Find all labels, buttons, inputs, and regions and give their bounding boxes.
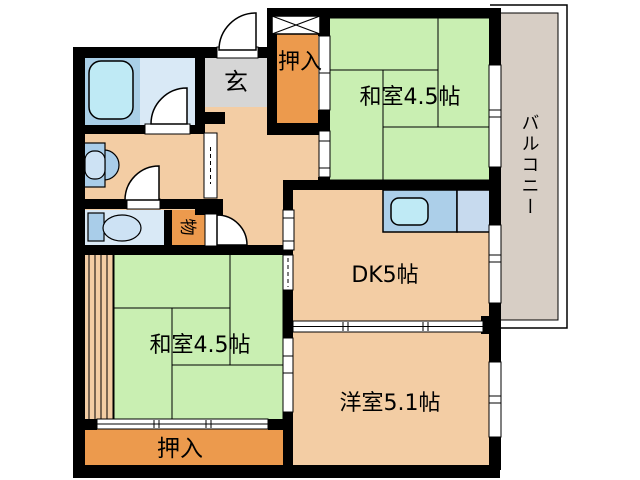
window-frame xyxy=(489,225,501,303)
window-frame xyxy=(489,65,501,167)
entrance-label: 玄 xyxy=(224,68,248,96)
bathroom-threshold xyxy=(145,124,190,134)
sliding-door-frame xyxy=(283,338,293,412)
wall xyxy=(164,210,172,245)
closet-top-box xyxy=(277,34,318,125)
dk-western-partition xyxy=(293,321,483,332)
washitsu-dk-sliding-door xyxy=(283,255,293,290)
wall xyxy=(283,250,293,255)
washroom-sliding-door xyxy=(204,133,217,198)
wall xyxy=(283,412,293,465)
window-frame xyxy=(489,362,501,437)
opening-frame xyxy=(283,210,294,250)
wall xyxy=(195,199,223,215)
bathtub-icon xyxy=(89,61,133,119)
kitchen-counter-icon xyxy=(383,190,490,232)
wall xyxy=(318,110,330,131)
closet-bottom-label: 押入 xyxy=(157,436,203,462)
sliding-door-frame xyxy=(204,133,217,198)
wall xyxy=(85,199,127,209)
sliding-door-frame xyxy=(319,131,330,177)
wall xyxy=(283,180,500,190)
washitsu-western-sliding-door xyxy=(283,338,293,412)
toilet-icon xyxy=(88,213,141,241)
dk-label: DK5帖 xyxy=(351,263,418,288)
hall-washitsu-sliding-door xyxy=(319,131,330,177)
wall xyxy=(267,18,277,135)
floorplan-page: 和室4.5帖 和室4.5帖 DK5帖 洋室5.1帖 押入 押入 玄 物 バルコニ… xyxy=(0,0,640,480)
wall xyxy=(489,437,501,470)
wall xyxy=(190,125,205,134)
wall xyxy=(283,290,293,338)
toilet-bowl xyxy=(103,215,141,241)
balcony-label: バルコニー xyxy=(519,113,540,218)
window-western-room xyxy=(489,362,501,437)
closet-top-label: 押入 xyxy=(278,50,322,75)
wall xyxy=(73,465,500,478)
pipe-space-icon xyxy=(272,16,320,34)
wall xyxy=(80,419,97,430)
wall xyxy=(283,190,293,210)
wall xyxy=(73,47,85,478)
wall xyxy=(489,8,501,65)
storage-label: 物 xyxy=(177,219,197,236)
washbasin-sink xyxy=(85,151,105,179)
toilet-tank xyxy=(88,213,104,241)
entrance-step-edge xyxy=(203,112,225,124)
hall-door-threshold xyxy=(205,214,218,246)
window-dk xyxy=(489,225,501,303)
wall xyxy=(489,167,501,225)
window-washitsu-top xyxy=(489,65,501,167)
wall xyxy=(268,419,283,430)
wall xyxy=(85,125,145,134)
western-room-label: 洋室5.1帖 xyxy=(340,391,441,416)
washitsu-top-label: 和室4.5帖 xyxy=(360,85,461,110)
hall-dk-opening xyxy=(283,210,294,250)
kitchen-counter-side xyxy=(457,190,490,232)
wall xyxy=(73,245,292,255)
kitchen-sink xyxy=(391,198,428,225)
washitsu-bottom-label: 和室4.5帖 xyxy=(150,333,251,358)
closet-bottom-fusuma xyxy=(97,419,268,429)
floorplan-drawing: 和室4.5帖 和室4.5帖 DK5帖 洋室5.1帖 押入 押入 玄 物 バルコニ… xyxy=(0,0,640,480)
